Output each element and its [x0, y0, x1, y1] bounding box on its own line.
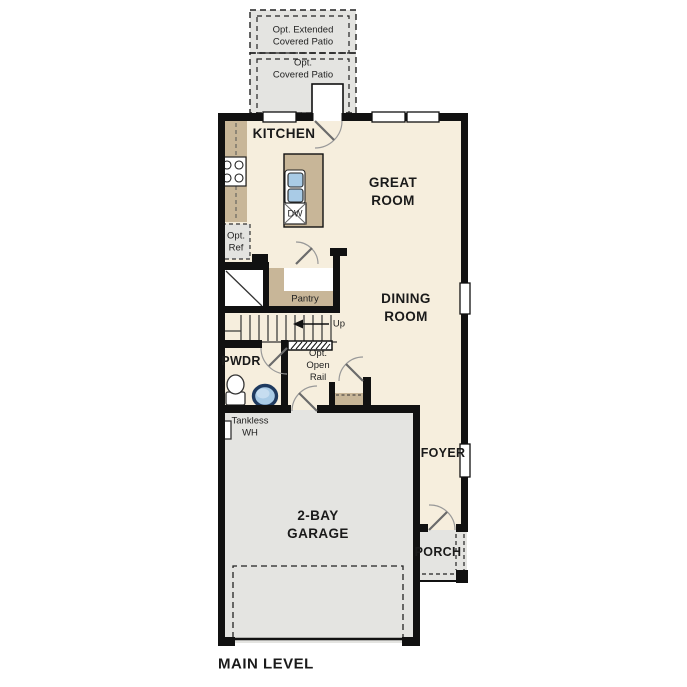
porch-post	[456, 570, 468, 583]
dishwasher-label: DW	[288, 208, 303, 220]
floor-plan-page: Opt. Extended Covered Patio Opt. Covered…	[0, 0, 687, 687]
porch-label: PORCH	[415, 545, 462, 559]
under-stair-closet	[225, 268, 263, 308]
up-label: Up	[333, 318, 345, 330]
pantry-label: Pantry	[291, 293, 318, 305]
garage-label: 2-BAY GARAGE	[287, 507, 349, 543]
window-icon	[263, 112, 296, 122]
patio-door-opening	[314, 113, 342, 121]
opt-open-rail-label: Opt. Open Rail	[306, 348, 329, 384]
extended-patio-label: Opt. Extended Covered Patio	[273, 25, 334, 48]
tankless-wh-label: Tankless WH	[232, 416, 269, 439]
kitchen-label: KITCHEN	[253, 125, 316, 143]
window-icon	[407, 112, 439, 122]
patio-door-recess	[312, 84, 343, 114]
foyer-label: FOYER	[421, 446, 466, 460]
opt-ref-label: Opt. Ref	[227, 231, 245, 254]
main-level-title: MAIN LEVEL	[218, 656, 314, 673]
pwdr-label: PWDR	[221, 354, 260, 368]
floor-plan-drawing	[0, 0, 687, 687]
covered-patio-label: Opt. Covered Patio	[273, 58, 333, 81]
great-room-label: GREAT ROOM	[369, 174, 417, 210]
kitchen-sink-icon	[288, 173, 303, 202]
window-icon	[460, 283, 470, 314]
vanity-sink-icon	[254, 386, 277, 407]
dining-room-label: DINING ROOM	[381, 290, 431, 326]
window-icon	[372, 112, 405, 122]
foyer-floor	[416, 410, 464, 530]
toilet-icon	[226, 375, 245, 405]
